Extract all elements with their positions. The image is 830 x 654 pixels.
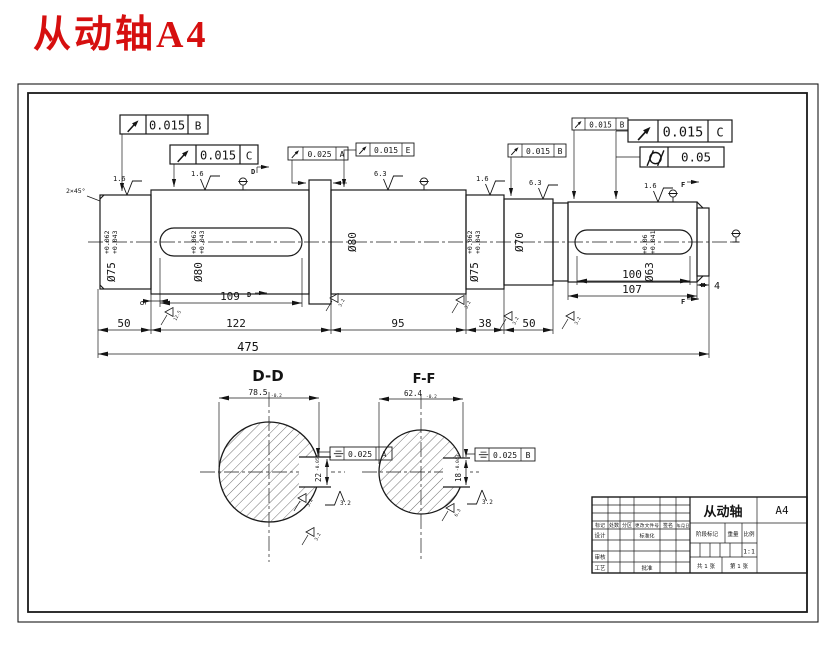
circular-runout-icon <box>638 127 650 140</box>
circular-runout-icon <box>292 150 299 158</box>
tb-audit: 审核 <box>594 553 606 561</box>
dim-38: 38 <box>478 317 491 330</box>
roughness-value: 6.3 <box>374 170 387 178</box>
fcf-datum: B <box>526 451 531 460</box>
fcf-value: 0.015 <box>526 147 550 156</box>
stage-label: 阶段标记 <box>696 530 719 538</box>
fcf-runout-015-C-2: 0.015 C <box>628 120 732 142</box>
section-title-ff: F-F <box>413 372 436 387</box>
dia-label: Ø80 <box>346 232 359 252</box>
dim-107: 107 <box>622 283 642 296</box>
dim-122: 122 <box>226 317 246 330</box>
fcf-datum: E <box>406 146 411 155</box>
roughness-value: 6.3 <box>529 179 542 187</box>
symmetry-icon <box>334 451 343 456</box>
dia-tol-hi: +0.062 <box>466 230 474 254</box>
dia-label: Ø63 <box>643 262 656 282</box>
dd-key-tol: -0.052 <box>315 454 321 471</box>
tb-approve: 批准 <box>641 564 653 572</box>
fcf-value: 0.015 <box>149 119 185 133</box>
dia-tol-hi: +0.06 <box>641 234 649 254</box>
dd-width-tol: -0.2 <box>271 393 282 399</box>
dia-tol-lo: +0.043 <box>198 230 206 254</box>
roughness-value: 1.6 <box>644 182 657 190</box>
fcf-symmetry-0025-B: 0.025 B <box>466 448 535 461</box>
dim-50b: 50 <box>522 317 535 330</box>
fcf-value: 0.015 <box>374 146 398 155</box>
circular-runout-icon <box>511 147 518 155</box>
cut-letter-f: F <box>681 181 685 189</box>
scale-value: 1:1 <box>743 548 755 556</box>
dia-label: Ø80 <box>192 262 205 282</box>
ff-width: 62.4 <box>404 389 423 398</box>
fcf-value: 0.015 <box>589 121 612 130</box>
tb-h1: 标记 <box>595 522 605 529</box>
mark-value: 3.2 <box>337 298 346 308</box>
svg-text:2×45°: 2×45° <box>66 187 86 195</box>
fcf-datum: B <box>620 121 625 130</box>
mark-value: 3.2 <box>573 316 582 326</box>
fcf-value: 0.025 <box>307 150 331 159</box>
dia-label: Ø70 <box>513 232 526 252</box>
sheet-number: 第 1 张 <box>730 562 748 570</box>
dim-50a: 50 <box>117 317 130 330</box>
title-block: 从动轴 A4 阶段标记 重量 比例 1:1 共 1 张 第 1 张 标记 处数 … <box>592 497 807 573</box>
symmetry-icon <box>479 452 488 457</box>
cut-letter-d: D <box>247 291 251 299</box>
dia-label: Ø75 <box>468 262 481 282</box>
mark-value: 3.2 <box>463 300 472 310</box>
fcf-value: 0.025 <box>348 450 372 459</box>
fcf-runout-015-B-1: 0.015 B <box>120 115 208 191</box>
cut-letter-f: F <box>681 298 685 306</box>
ff-roughness: 3.2 <box>482 499 493 506</box>
section-view-ff: F-F 62.4 -0.2 18 -0.043 0.025 B <box>362 372 535 560</box>
dim-475: 475 <box>237 340 259 354</box>
sheet-border <box>18 84 818 622</box>
tb-process: 工艺 <box>594 565 606 572</box>
mark-value: 12.5 <box>172 309 183 322</box>
fcf-value: 0.015 <box>200 149 236 163</box>
dia-tol-hi: +0.062 <box>103 230 111 254</box>
tb-h5: 签名 <box>663 522 673 529</box>
circular-runout-icon <box>178 150 189 161</box>
surface-roughness-marks: 1.6 1.6 6.3 1.6 6.3 1.6 <box>113 170 673 202</box>
part-name: 从动轴 <box>703 504 742 520</box>
circular-runout-icon <box>359 146 366 154</box>
dd-width: 78.5 <box>248 388 267 397</box>
mark-value: 3.2 <box>313 532 322 542</box>
roughness-value: 1.6 <box>191 170 204 178</box>
chamfer-note: 2×45° <box>66 187 100 201</box>
cad-drawing-canvas: Ø75 +0.062 +0.043 Ø80 +0.062 +0.043 Ø80 … <box>0 0 830 654</box>
dia-label: Ø75 <box>105 262 118 282</box>
ff-key-tol: -0.043 <box>455 454 461 471</box>
tb-design: 设计 <box>594 532 606 540</box>
sheet-size: A4 <box>775 504 789 517</box>
circular-runout-icon <box>575 121 581 128</box>
mark-value: 6.3 <box>453 508 462 518</box>
cut-letter-d: D <box>251 168 255 176</box>
tb-h2: 处数 <box>609 522 619 529</box>
dim-109: 109 <box>220 290 240 303</box>
fcf-value: 0.05 <box>681 150 711 165</box>
tb-h6: 年、月、日 <box>677 522 690 529</box>
cylindricity-icon <box>647 150 664 165</box>
roughness-value: 1.6 <box>476 175 489 183</box>
dd-key-width: 22 <box>314 473 323 482</box>
datum-target-symbols <box>238 178 740 242</box>
fcf-runout-015-B-2: 0.015 B <box>508 144 566 196</box>
fcf-runout-015-E: 0.015 E <box>344 143 414 187</box>
dim-100: 100 <box>622 268 642 281</box>
fcf-runout-0025-A: 0.025 A <box>288 147 348 183</box>
fcf-datum: B <box>558 147 563 156</box>
fcf-runout-015-B-3: 0.015 B <box>572 118 628 199</box>
fcf-value: 0.025 <box>493 451 517 460</box>
scale-label: 比例 <box>743 530 755 538</box>
fcf-frames: 0.015 B 0.015 C 0.025 A <box>120 115 732 199</box>
dia-tol-hi: +0.062 <box>190 230 198 254</box>
fcf-value: 0.015 <box>663 125 704 141</box>
dim-4: 4 <box>714 281 720 292</box>
dim-95: 95 <box>391 317 404 330</box>
section-view-dd: D-D 78.5 -0.2 22 -0.052 0.025 A <box>200 367 392 562</box>
dia-tol-lo: +0.041 <box>649 230 657 254</box>
dia-tol-lo: +0.043 <box>474 230 482 254</box>
dim-9: 9 <box>139 300 148 305</box>
roughness-value: 1.6 <box>113 175 126 183</box>
sheet-total: 共 1 张 <box>697 562 715 570</box>
tb-h4: 更改文件号 <box>635 522 659 529</box>
fcf-runout-015-C-1: 0.015 C <box>170 145 258 187</box>
fcf-datum: C <box>716 126 723 140</box>
circular-runout-icon <box>128 120 139 131</box>
tb-standardize: 标准化 <box>639 533 654 540</box>
drawing-sheet: 从动轴A4 <box>0 0 830 654</box>
section-title-dd: D-D <box>252 367 283 385</box>
weight-label: 重量 <box>727 530 739 538</box>
dia-tol-lo: +0.043 <box>111 230 119 254</box>
ff-width-tol: -0.2 <box>426 394 437 400</box>
mark-value: 3.2 <box>511 316 520 326</box>
fcf-datum: B <box>195 120 202 133</box>
ff-key-width: 18 <box>454 473 463 483</box>
dd-roughness: 3.2 <box>340 500 351 507</box>
fcf-datum: C <box>246 150 253 163</box>
tb-h3: 分区 <box>622 522 632 529</box>
